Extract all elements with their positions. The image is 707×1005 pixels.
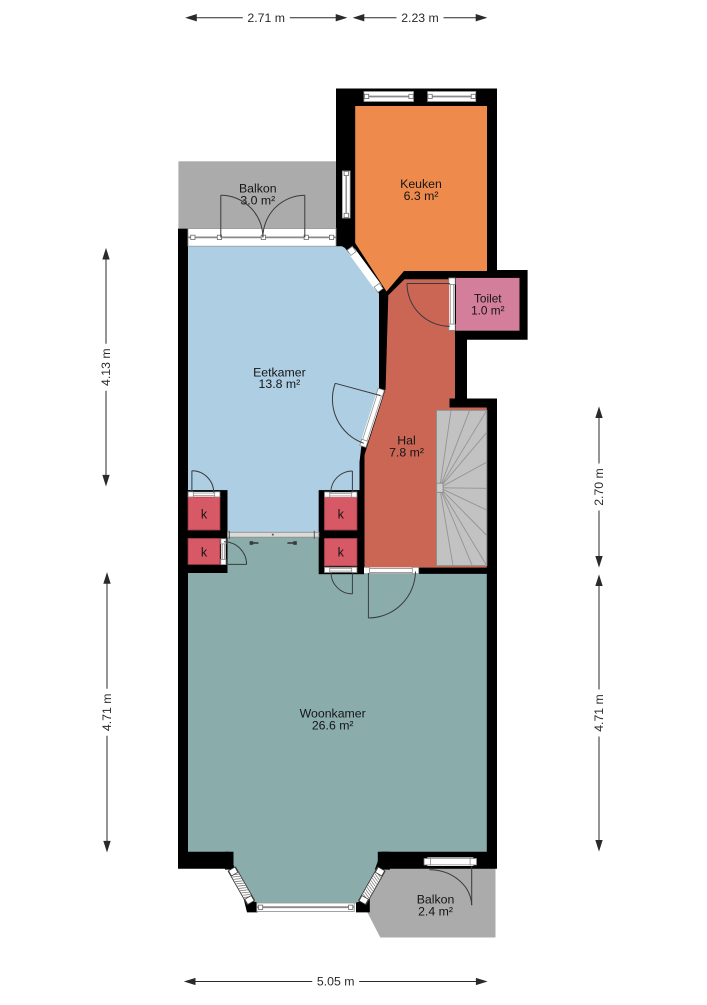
svg-text:1.0 m²: 1.0 m² (471, 303, 505, 317)
svg-text:13.8 m²: 13.8 m² (259, 377, 301, 391)
svg-text:5.05 m: 5.05 m (317, 975, 355, 989)
svg-text:4.13 m: 4.13 m (99, 348, 113, 386)
svg-text:k: k (338, 546, 345, 560)
svg-text:6.3 m²: 6.3 m² (404, 189, 439, 203)
svg-text:2.71 m: 2.71 m (247, 11, 285, 25)
svg-text:4.71 m: 4.71 m (100, 694, 114, 732)
svg-text:2.4 m²: 2.4 m² (418, 904, 453, 918)
svg-text:4.71 m: 4.71 m (592, 694, 606, 732)
svg-text:7.8 m²: 7.8 m² (389, 445, 424, 459)
svg-text:3.0 m²: 3.0 m² (240, 193, 275, 207)
svg-text:k: k (201, 546, 208, 560)
svg-text:2.23 m: 2.23 m (401, 11, 439, 25)
svg-text:k: k (201, 508, 208, 522)
svg-text:k: k (338, 508, 345, 522)
svg-text:2.70 m: 2.70 m (592, 468, 606, 506)
svg-text:26.6 m²: 26.6 m² (312, 718, 354, 732)
